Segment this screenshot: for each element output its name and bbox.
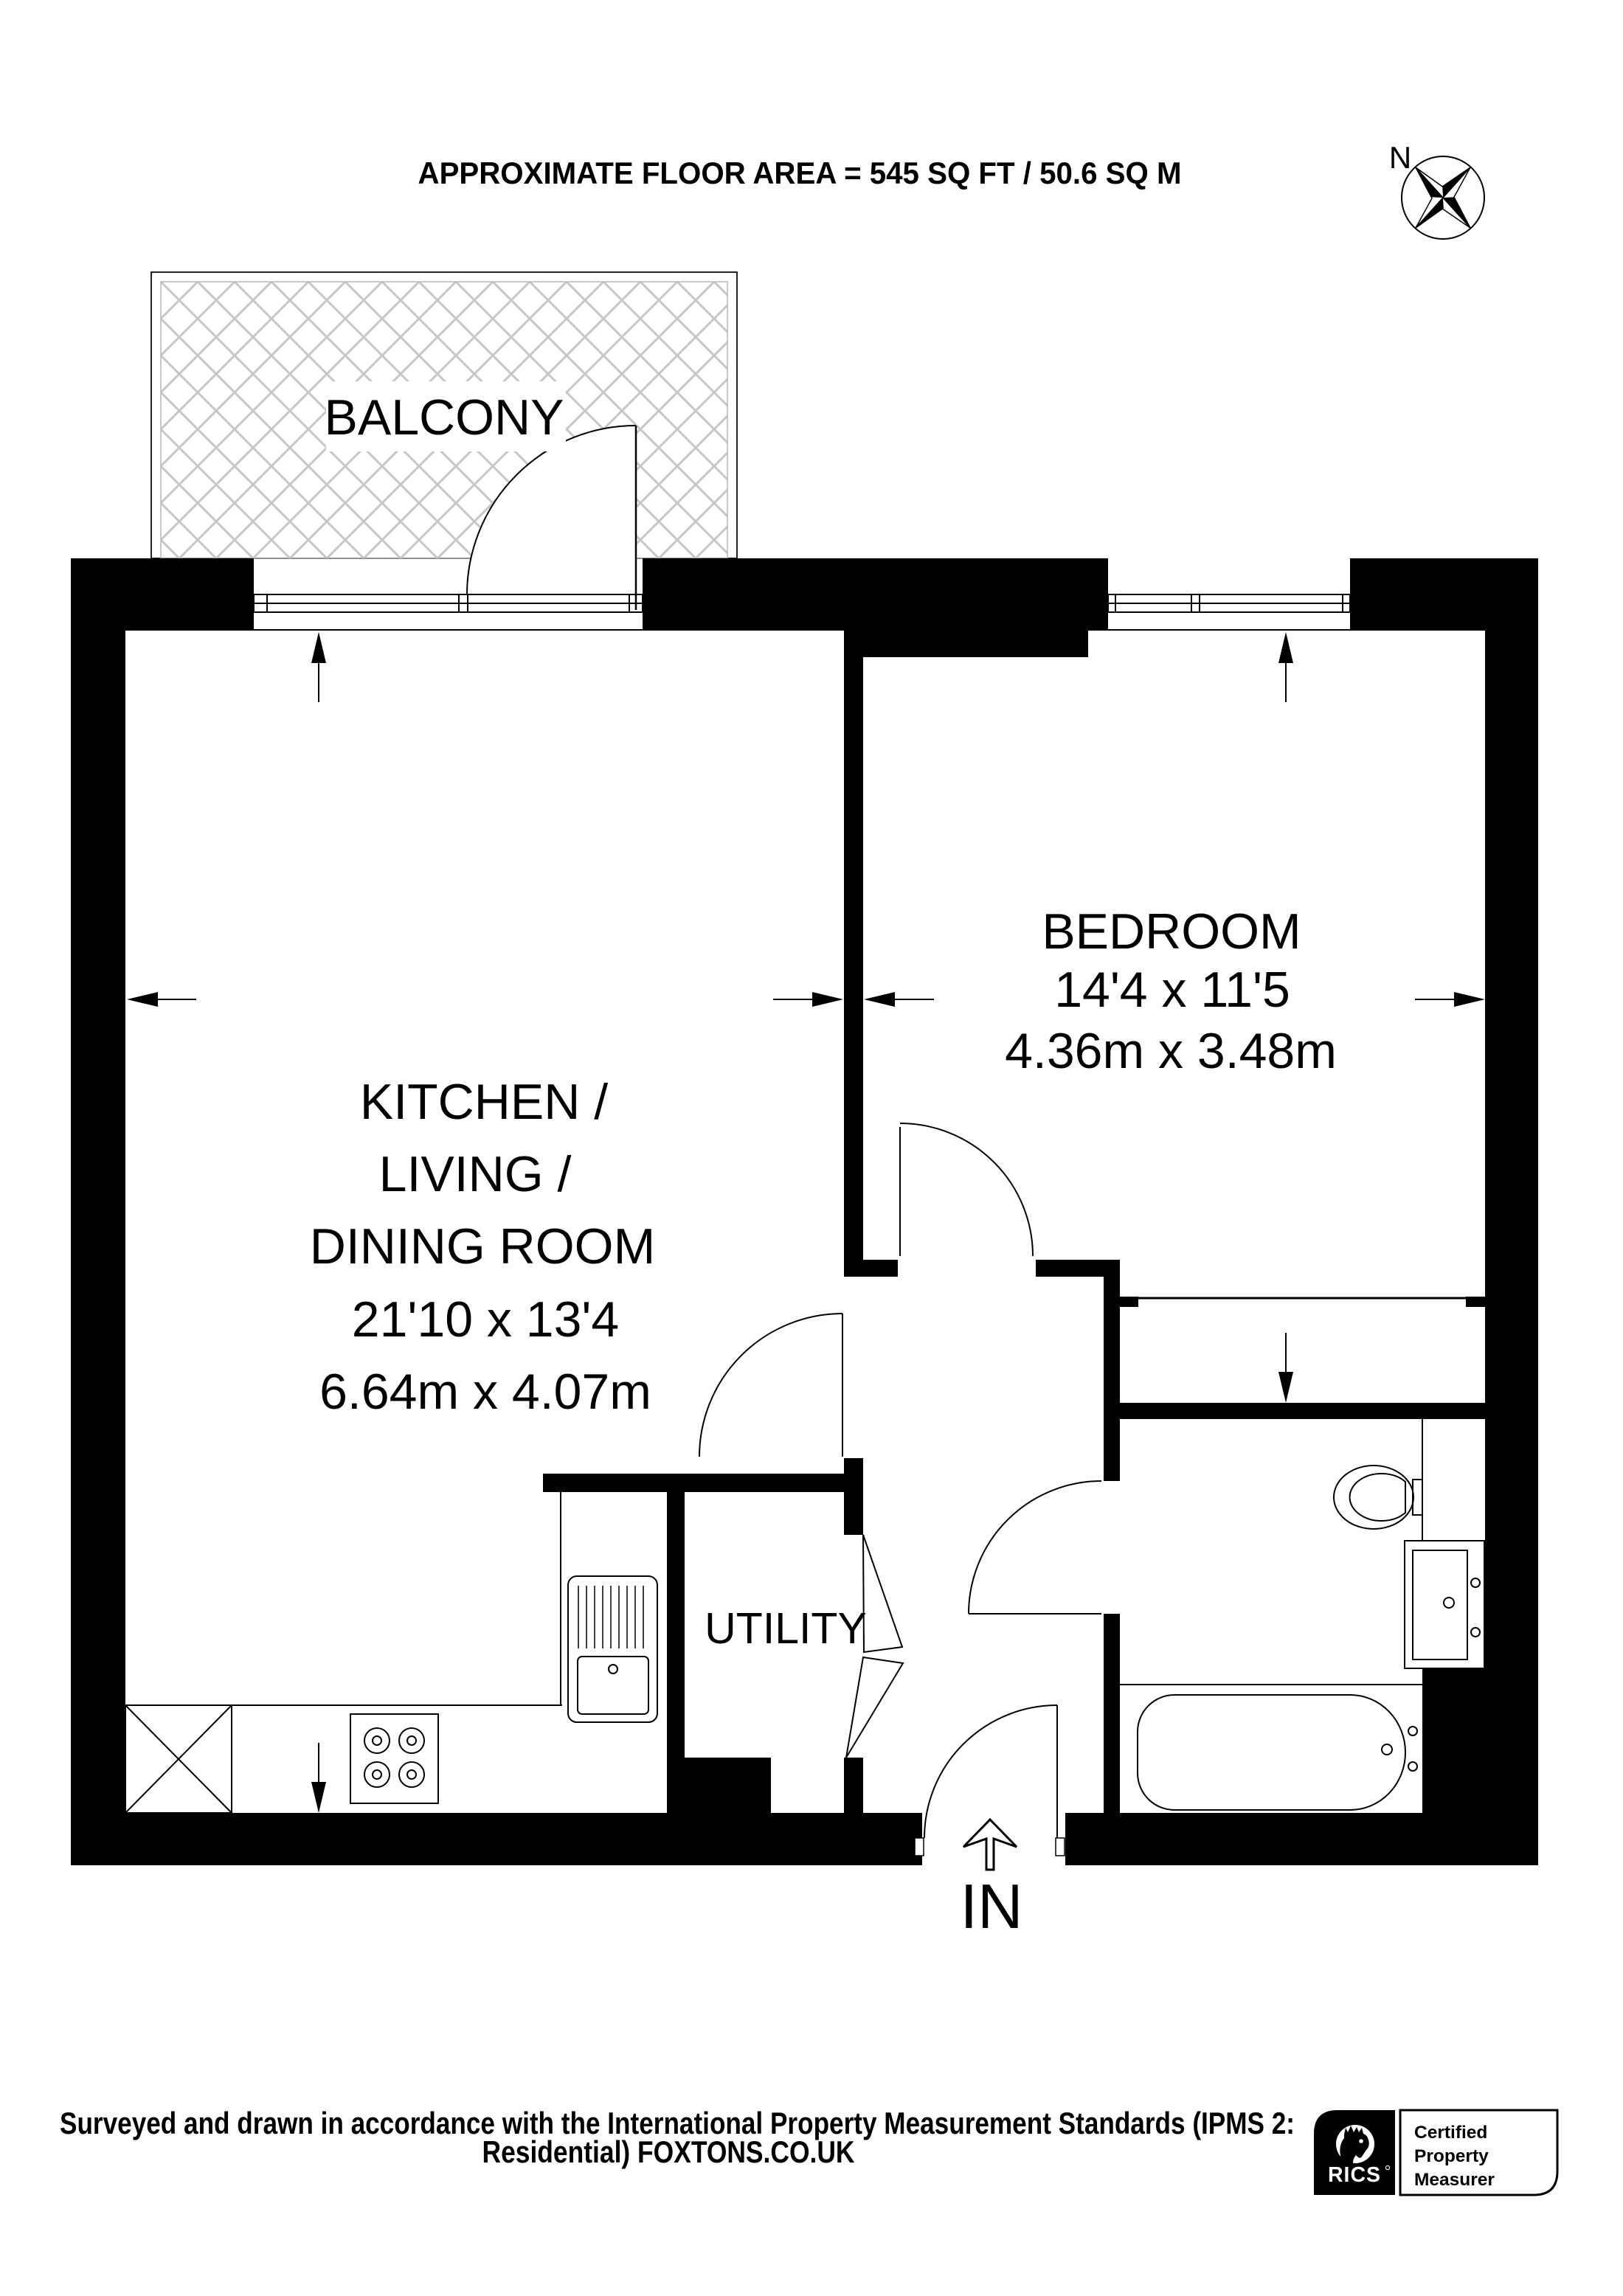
svg-text:4.36m x 3.48m: 4.36m x 3.48m xyxy=(1005,1023,1337,1079)
svg-text:N: N xyxy=(1389,140,1411,175)
svg-text:APPROXIMATE FLOOR AREA = 545 S: APPROXIMATE FLOOR AREA = 545 SQ FT / 50.… xyxy=(418,156,1182,190)
svg-text:IN: IN xyxy=(961,1872,1023,1942)
svg-text:Measurer: Measurer xyxy=(1414,2170,1495,2190)
svg-text:Property: Property xyxy=(1414,2146,1489,2166)
svg-text:DINING ROOM: DINING ROOM xyxy=(310,1218,655,1274)
svg-text:6.64m x 4.07m: 6.64m x 4.07m xyxy=(319,1364,651,1420)
svg-text:Certified: Certified xyxy=(1414,2123,1487,2143)
svg-text:UTILITY: UTILITY xyxy=(705,1604,867,1653)
svg-text:RICS: RICS xyxy=(1328,2163,1381,2187)
svg-text:KITCHEN /: KITCHEN / xyxy=(360,1074,608,1130)
svg-text:BALCONY: BALCONY xyxy=(325,389,564,445)
svg-text:Residential) FOXTONS.CO.UK: Residential) FOXTONS.CO.UK xyxy=(482,2134,855,2169)
svg-text:14'4 x 11'5: 14'4 x 11'5 xyxy=(1054,962,1290,1018)
svg-text:LIVING /: LIVING / xyxy=(379,1146,572,1202)
svg-text:21'10 x 13'4: 21'10 x 13'4 xyxy=(352,1291,619,1348)
svg-text:BEDROOM: BEDROOM xyxy=(1042,904,1301,960)
